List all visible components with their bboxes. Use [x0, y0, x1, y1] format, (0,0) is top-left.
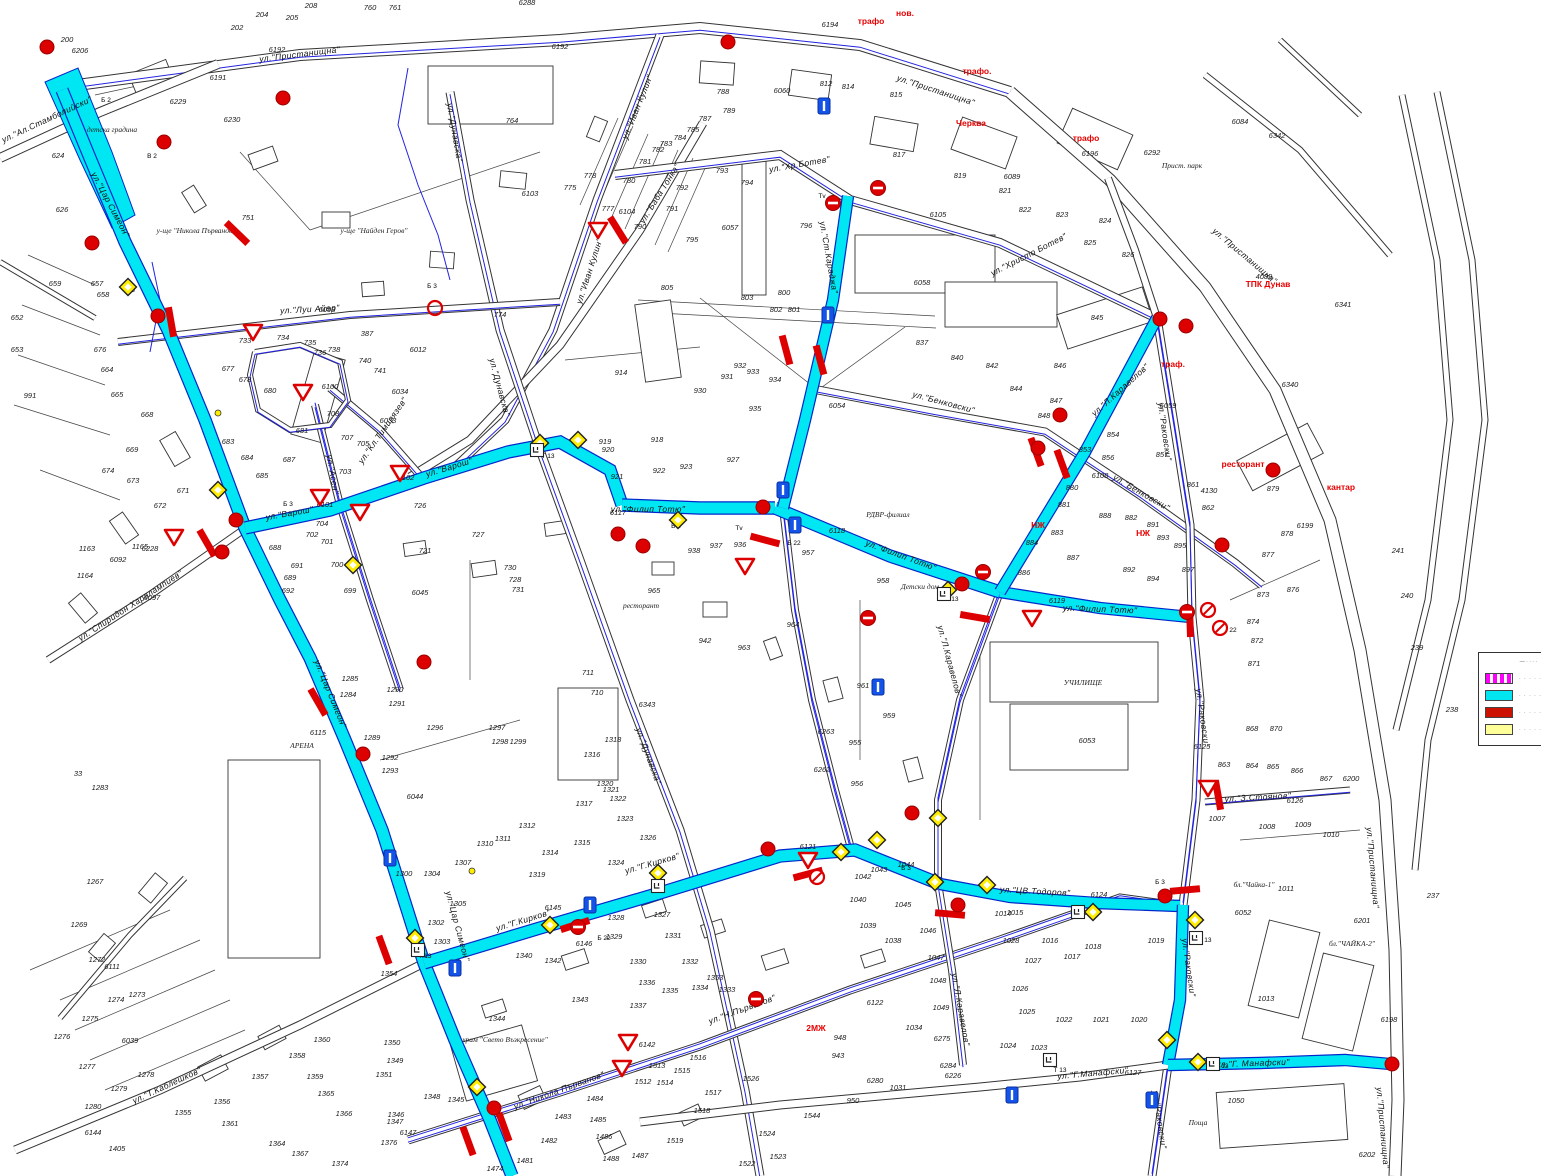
parcel-number: 1344 — [489, 1014, 506, 1023]
parcel-number: 815 — [890, 90, 903, 99]
parcel-number: 922 — [653, 466, 666, 475]
parcel-number: 1298 — [492, 737, 510, 746]
parcel-number: 788 — [717, 87, 730, 96]
parcel-number: 1025 — [1019, 1007, 1037, 1016]
parcel-number: 721 — [419, 546, 432, 555]
building — [990, 642, 1158, 702]
parcel-number: 991 — [24, 391, 37, 400]
yellow-marker-icon — [215, 410, 221, 416]
street-name-label: ул."Л.Каравелов" — [1088, 361, 1151, 419]
parcel-number: 1514 — [657, 1078, 674, 1087]
legend-magenta-label: · · · · · · · — [1519, 676, 1541, 682]
yield-sign-icon — [589, 223, 607, 238]
red-annotation: нов. — [896, 8, 914, 18]
parcel-number: 1315 — [574, 838, 592, 847]
parcel-number: 780 — [623, 176, 636, 185]
parcel-number: 703 — [339, 467, 352, 476]
red-annotation: траф. — [1161, 359, 1185, 369]
parcel-number: 1354 — [381, 969, 398, 978]
parcel-number: 6340 — [1282, 380, 1300, 389]
parcel-number: 1296 — [427, 723, 445, 732]
parcel-number: 775 — [564, 183, 577, 192]
legend-title: — · · · · — [1479, 653, 1541, 667]
parcel-number: 964 — [787, 620, 800, 629]
parcel-number: 701 — [321, 537, 334, 546]
parcel-number: 825 — [1084, 238, 1097, 247]
parcel-number: 671 — [177, 486, 190, 495]
parcel-number: 1040 — [850, 895, 868, 904]
parcel-number: 819 — [954, 171, 967, 180]
parcel-number: 1010 — [1323, 830, 1341, 839]
parcel-number: 683 — [222, 437, 235, 446]
parcel-number: 1358 — [289, 1051, 307, 1060]
parcel-number: 1267 — [87, 877, 105, 886]
parcel-number: 6262 — [814, 765, 832, 774]
building — [109, 512, 138, 544]
legend-cyan-label: · · · · · · · — [1519, 693, 1541, 699]
parcel-boundary — [22, 305, 100, 335]
parcel-number: 684 — [241, 453, 254, 462]
parcel-number: 1318 — [605, 735, 623, 744]
parcel-number: 847 — [1050, 396, 1063, 405]
parcel-number: 1292 — [382, 753, 400, 762]
parcel-number: 1017 — [1064, 952, 1082, 961]
parcel-number: 956 — [851, 779, 864, 788]
parcel-number: 736 — [314, 348, 327, 357]
road-closure-bar-icon — [376, 935, 393, 966]
parcel-number: 845 — [1091, 313, 1104, 322]
parcel-number: 1474 — [487, 1164, 504, 1173]
parcel-number: 1487 — [632, 1151, 650, 1160]
stop-sign-icon — [955, 577, 969, 591]
parcel-number: 950 — [847, 1096, 860, 1105]
parcel-number: 886 — [1018, 568, 1031, 577]
parcel-number: 1544 — [804, 1111, 821, 1120]
parcel-number: 1039 — [860, 921, 878, 930]
poi-label: детска градина — [87, 125, 137, 134]
parcel-number: 936 — [734, 540, 747, 549]
parcel-number: 840 — [951, 353, 964, 362]
parcel-number: 689 — [284, 573, 297, 582]
parcel-number: 1269 — [71, 920, 89, 929]
building — [703, 602, 727, 617]
parcel-number: 237 — [1426, 891, 1440, 900]
poi-label: храм "Свето Възкресение" — [461, 1035, 548, 1044]
parcel-number: 699 — [344, 586, 357, 595]
parcel-number: 1353 — [707, 973, 725, 982]
parcel-number: 1008 — [1259, 822, 1277, 831]
parcel-number: 837 — [916, 338, 929, 347]
road-closure-bar-icon — [779, 335, 794, 366]
parcel-number: 6057 — [722, 223, 740, 232]
parcel-number: 241 — [1391, 546, 1405, 555]
info-sign-glyph — [823, 101, 825, 111]
parcel-number: 6012 — [410, 345, 428, 354]
parcel-number: 6118 — [829, 526, 846, 535]
parcel-number: 6103 — [522, 189, 540, 198]
building — [1302, 953, 1374, 1051]
stop-sign-icon — [1153, 312, 1167, 326]
parcel-number: 958 — [877, 576, 890, 585]
parcel-number: 846 — [1054, 361, 1067, 370]
yield-sign-icon — [619, 1035, 637, 1050]
parcel-number: 1019 — [1148, 936, 1166, 945]
parcel-number: 932 — [734, 361, 747, 370]
parcel-number: 938 — [688, 546, 701, 555]
parcel-number: 856 — [1102, 453, 1115, 462]
parcel-number: 935 — [749, 404, 762, 413]
parcel-number: 1283 — [92, 783, 110, 792]
poi-label: Прист. парк — [1161, 161, 1203, 170]
parcel-number: 760 — [364, 3, 377, 12]
parcel-number: 673 — [127, 476, 140, 485]
parcel-number: 6280 — [867, 1076, 885, 1085]
building — [635, 300, 682, 382]
parcel-number: 961 — [857, 681, 870, 690]
parcel-number: 791 — [666, 204, 679, 213]
parcel-number: 923 — [680, 462, 693, 471]
map-canvas[interactable]: 2006206202204205208619261916229623075162… — [0, 0, 1541, 1176]
parcel-number: 204 — [255, 10, 269, 19]
parcel-number: 1297 — [489, 723, 507, 732]
parcel-number: 6147 — [400, 1128, 418, 1137]
parcel-number: 1327 — [654, 910, 672, 919]
parcel-number: 676 — [94, 345, 107, 354]
parcel-number: 1049 — [933, 1003, 951, 1012]
parcel-number: 1291 — [389, 699, 406, 708]
parcel-number: 6292 — [1144, 148, 1162, 157]
parcel-number: 1290 — [387, 685, 405, 694]
parcel-number: 751 — [242, 213, 255, 222]
parcel-number: 1046 — [920, 926, 938, 935]
parcel-number: 6124 — [1091, 890, 1108, 899]
street-name-label: ул."Л.Каравелов" — [935, 623, 964, 698]
parcel-number: 774 — [494, 310, 507, 319]
parcel-number: 1349 — [387, 1056, 405, 1065]
stop-sign-icon — [487, 1101, 501, 1115]
road-closure-bar-icon — [1170, 885, 1200, 895]
parcel-number: 894 — [1147, 574, 1160, 583]
poi-label: бл."Чайка-1" — [1233, 880, 1275, 889]
info-sign-glyph — [389, 853, 391, 863]
red-annotation: трафо. — [963, 66, 992, 76]
parcel-number: 965 — [648, 586, 661, 595]
stop-sign-icon — [611, 527, 625, 541]
parcel-number: 6288 — [519, 0, 537, 7]
legend-yellow-label: · · · · · · · — [1519, 727, 1541, 733]
parcel-number: 884 — [1026, 538, 1039, 547]
no-entry-sign-bar — [978, 571, 988, 574]
sign-code: Тv — [735, 525, 743, 532]
parcel-number: 957 — [802, 548, 815, 557]
parcel-number: 1045 — [895, 900, 913, 909]
parcel-number: 868 — [1246, 724, 1259, 733]
parcel-number: 681 — [296, 426, 309, 435]
parcel-number: 1007 — [1209, 814, 1227, 823]
parcel-number: 704 — [316, 519, 329, 528]
parcel-number: 669 — [126, 445, 139, 454]
road-closure-bar-icon — [460, 1126, 477, 1157]
parcel-number: 1518 — [694, 1106, 712, 1115]
parcel-number: 895 — [1174, 541, 1187, 550]
parcel-number: 6108 — [1092, 471, 1110, 480]
parcel-number: 6034 — [392, 387, 409, 396]
parcel-number: 802 — [770, 305, 783, 314]
parcel-number: 794 — [741, 178, 754, 187]
parcel-number: 730 — [504, 563, 517, 572]
parcel-number: 1163 — [79, 544, 96, 553]
parcel-number: 871 — [1248, 659, 1261, 668]
cyan-street-l-karavelov-ne — [1000, 318, 1157, 592]
parcel-number: 1359 — [307, 1072, 325, 1081]
parcel-number: 1164 — [77, 571, 93, 580]
stop-sign-icon — [1179, 319, 1193, 333]
parcel-number: 1275 — [82, 1014, 100, 1023]
parcel-number: 782 — [652, 145, 665, 154]
stop-sign-icon — [1031, 441, 1045, 455]
yield-sign-icon — [351, 505, 369, 520]
parcel-number: 6343 — [639, 700, 657, 709]
parcel-number: 6052 — [1235, 908, 1253, 917]
parcel-number: 741 — [374, 366, 387, 375]
parcel-number: 6284 — [940, 1061, 957, 1070]
building — [561, 949, 588, 971]
street-name-label: ул."Филип Тотю" — [1062, 603, 1138, 616]
parcel-number: 792 — [676, 183, 689, 192]
parcel-number: 1013 — [1258, 994, 1276, 1003]
parcel-number: 1526 — [743, 1074, 761, 1083]
building — [861, 949, 886, 968]
parcel-number: 1376 — [381, 1138, 399, 1147]
parcel-number: 200 — [60, 35, 74, 44]
building — [228, 760, 320, 958]
parcel-boundary — [1240, 830, 1360, 840]
parcel-number: 702 — [306, 530, 319, 539]
poi-label: РДВР-филиал — [865, 510, 909, 519]
parcel-number: 6146 — [576, 939, 594, 948]
parcel-number: 674 — [102, 466, 115, 475]
parcel-number: 761 — [389, 3, 402, 12]
parcel-number: 4130 — [1201, 486, 1219, 495]
parcel-number: 6206 — [72, 46, 90, 55]
building — [823, 677, 843, 702]
info-sign-glyph — [1011, 1090, 1013, 1100]
parcel-number: 934 — [769, 375, 782, 384]
parcel-number: 1009 — [1295, 820, 1313, 829]
parcel-number: 824 — [1099, 216, 1112, 225]
parcel-number: 728 — [509, 575, 522, 584]
parcel-number: 1310 — [477, 839, 495, 848]
parcel-number: 6104 — [619, 207, 636, 216]
parcel-number: 1484 — [587, 1094, 604, 1103]
parcel-number: 6039 — [122, 1036, 140, 1045]
parcel-number: 876 — [1287, 585, 1300, 594]
parcel-number: 1304 — [424, 869, 441, 878]
parcel-number: 959 — [883, 711, 896, 720]
parcel-number: 883 — [1051, 528, 1064, 537]
stop-sign-icon — [151, 309, 165, 323]
building — [699, 61, 734, 85]
parcel-number: 1278 — [138, 1070, 156, 1079]
parcel-number: 1302 — [428, 918, 446, 927]
building — [945, 282, 1057, 327]
legend-item-legend-red: · · · · · · · — [1485, 707, 1535, 718]
parcel-number: 1516 — [690, 1053, 708, 1062]
parcel-number: 1028 — [1003, 936, 1021, 945]
parcel-number: 691 — [291, 561, 304, 570]
red-annotation: 2МЖ — [806, 1023, 826, 1033]
parcel-number: 1367 — [292, 1149, 310, 1158]
street-name-label: ул."Пристанищна" — [1364, 826, 1381, 910]
parcel-number: 1289 — [364, 733, 382, 742]
parcel-number: 1488 — [603, 1154, 621, 1163]
parcel-number: 1342 — [545, 956, 563, 965]
poi-label: ресторант — [622, 601, 660, 610]
parcel-number: 1311 — [495, 834, 511, 843]
parcel-number: 658 — [97, 290, 110, 299]
parcel-number: 1357 — [252, 1072, 270, 1081]
parcel-number: 873 — [1257, 590, 1270, 599]
stop-sign-icon — [356, 747, 370, 761]
parcel-number: 1345 — [448, 1095, 466, 1104]
parcel-number: 6194 — [822, 20, 839, 29]
parcel-number: 657 — [91, 279, 104, 288]
parcel-number: 937 — [710, 541, 723, 550]
parcel-number: 943 — [832, 1051, 845, 1060]
parcel-number: 1374 — [332, 1159, 349, 1168]
stop-sign-icon — [636, 539, 650, 553]
parcel-number: 803 — [741, 293, 754, 302]
building — [182, 185, 207, 213]
parcel-number: 1482 — [541, 1136, 559, 1145]
parcel-boundary — [18, 355, 105, 385]
parcel-number: 688 — [269, 543, 282, 552]
parcel-number: 866 — [1291, 766, 1304, 775]
parcel-boundary — [28, 255, 95, 285]
stop-sign-icon — [1053, 408, 1067, 422]
parcel-number: 1347 — [387, 1117, 405, 1126]
parcel-number: 1331 — [665, 931, 682, 940]
sign-code: Б 22 — [787, 540, 801, 547]
parcel-number: 1303 — [434, 937, 452, 946]
parcel-number: 1365 — [318, 1089, 336, 1098]
parcel-number: 805 — [661, 283, 674, 292]
sign-code: Т 13 — [1053, 1067, 1066, 1074]
parcel-number: 865 — [1267, 762, 1280, 771]
parcel-number: 6058 — [914, 278, 932, 287]
parcel-boundary — [640, 312, 936, 328]
parcel-number: 1022 — [1056, 1015, 1074, 1024]
no-entry-sign-bar — [573, 926, 583, 929]
parcel-number: 1276 — [54, 1032, 72, 1041]
parcel-number: 1355 — [175, 1108, 193, 1117]
parcel-number: 678 — [239, 375, 252, 384]
parcel-number: 1034 — [906, 1023, 923, 1032]
parcel-number: 700 — [331, 560, 344, 569]
stop-sign-icon — [215, 545, 229, 559]
parcel-number: 664 — [101, 365, 114, 374]
parcel-number: 842 — [986, 361, 999, 370]
parcel-number: 1519 — [667, 1136, 685, 1145]
parcel-number: 1350 — [384, 1038, 402, 1047]
sign-code: Б 3 — [427, 283, 437, 290]
parcel-number: 652 — [11, 313, 24, 322]
street-name-label: ул."Бенковски" — [1110, 472, 1172, 513]
parcel-number: 1280 — [85, 1102, 103, 1111]
parcel-number: 1524 — [759, 1129, 776, 1138]
yield-sign-icon — [1023, 611, 1041, 626]
parcel-number: 880 — [1066, 483, 1079, 492]
parcel-number: 680 — [264, 386, 277, 395]
parcel-number: 1340 — [516, 951, 534, 960]
parcel-number: 1038 — [885, 936, 903, 945]
street-name-label: ул."Пристанищна" — [1374, 1086, 1391, 1170]
parcel-number: 6084 — [1232, 117, 1249, 126]
parcel-number: 897 — [1182, 565, 1195, 574]
parcel-number: 1337 — [630, 1001, 648, 1010]
parcel-boundary — [14, 405, 110, 435]
stop-sign-icon — [276, 91, 290, 105]
parcel-number: 205 — [285, 13, 299, 22]
parcel-number: 800 — [778, 288, 791, 297]
stop-sign-icon — [40, 40, 54, 54]
parcel-number: 1018 — [1085, 942, 1103, 951]
info-sign-glyph — [782, 485, 784, 495]
parcel-number: 6202 — [1359, 1150, 1377, 1159]
cadastral-map[interactable]: 2006206202204205208619261916229623075162… — [0, 0, 1541, 1176]
parcel-number: 1366 — [336, 1109, 354, 1118]
parcel-number: 1485 — [590, 1115, 608, 1124]
info-sign-glyph — [794, 520, 796, 530]
parcel-number: 1512 — [635, 1077, 653, 1086]
red-annotation: Черква — [956, 118, 986, 128]
parcel-number: 963 — [738, 643, 751, 652]
parcel-number: 1343 — [572, 995, 590, 1004]
parcel-number: 208 — [304, 1, 318, 10]
street-name-label: ул."Дунавска" — [634, 725, 664, 786]
parcel-number: 6121 — [800, 842, 817, 851]
legend-item-legend-yellow: · · · · · · · — [1485, 724, 1535, 735]
parcel-number: 33 — [74, 769, 83, 778]
stop-sign-icon — [1385, 1057, 1399, 1071]
sign-code: Б 3 — [283, 501, 293, 508]
parcel-number: 892 — [1123, 565, 1136, 574]
parcel-boundary — [90, 1000, 230, 1060]
red-annotation: ТПК Дунав — [1246, 279, 1291, 289]
parcel-number: 1336 — [639, 978, 657, 987]
parcel-number: 1020 — [1131, 1015, 1149, 1024]
building — [429, 251, 454, 269]
poi-label: у-ще "Никола Първанов" — [156, 226, 237, 235]
road-closure-bar-icon — [750, 533, 781, 548]
red-annotation: трафо — [1073, 133, 1100, 143]
parcel-number: 668 — [141, 410, 154, 419]
road-closure-bar-icon — [1054, 449, 1071, 480]
sign-code: Б 22 — [597, 935, 611, 942]
parcel-number: 814 — [842, 82, 855, 91]
building — [1010, 704, 1128, 770]
parcel-number: 240 — [1400, 591, 1414, 600]
parcel-number: 1319 — [529, 870, 547, 879]
parcel-number: 1284 — [340, 690, 357, 699]
parcel-number: 1043 — [871, 865, 889, 874]
parcel-number: 930 — [694, 386, 707, 395]
parcel-number: 1360 — [314, 1035, 332, 1044]
street-fill-left-minor — [0, 262, 95, 318]
parcel-number: 942 — [699, 636, 712, 645]
building — [761, 949, 788, 971]
parcel-number: 931 — [721, 372, 734, 381]
